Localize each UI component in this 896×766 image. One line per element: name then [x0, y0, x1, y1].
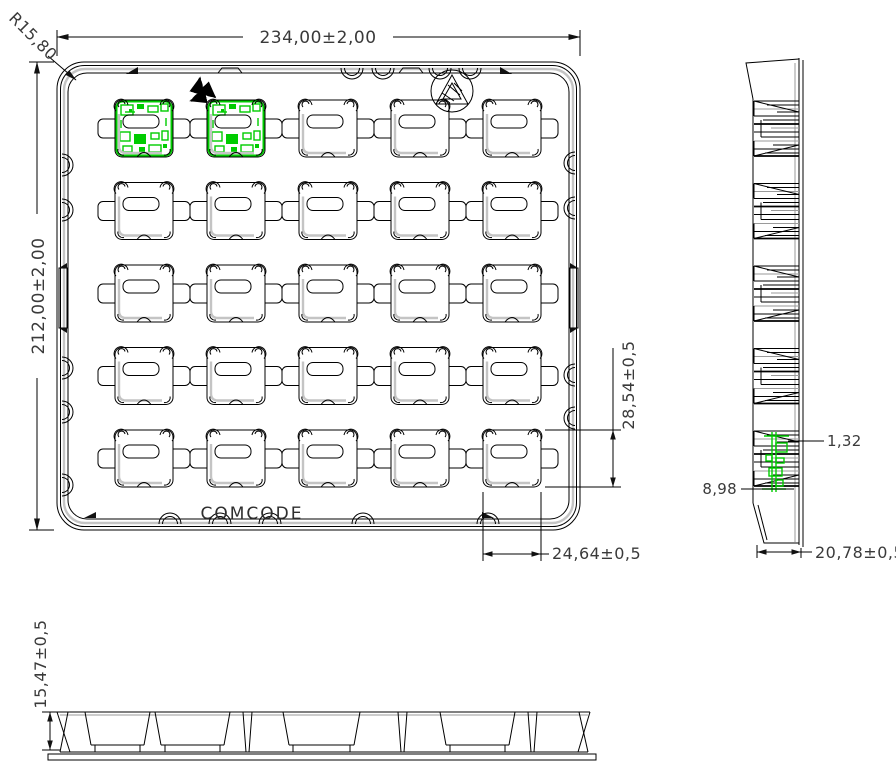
tray-label: COMCODE	[200, 504, 303, 524]
pocket	[98, 347, 190, 405]
side-pocket-profile	[754, 349, 799, 404]
pocket	[190, 429, 282, 487]
pocket	[190, 182, 282, 240]
pocket	[282, 429, 374, 487]
pocket	[466, 182, 558, 240]
dim-pocket-width: 24,64±0,5	[483, 492, 641, 563]
tray-border	[57, 62, 580, 530]
front-view: 15,47±0,5	[31, 619, 596, 760]
pocket	[374, 264, 466, 322]
dim-corner-radius-label: R15,80	[5, 8, 61, 64]
top-view: COMCODE	[57, 62, 580, 530]
material-mark-icon	[431, 70, 473, 112]
pocket	[466, 429, 558, 487]
dim-pocket-depth-label: 8,98	[702, 480, 737, 498]
engineering-drawing: COMCODE 234,00±2,00 212,00±2,00 R15,80 2…	[0, 0, 896, 766]
pocket	[98, 182, 190, 240]
dim-tray-height-label: 15,47±0,5	[31, 619, 50, 708]
dim-profile-width: 20,78±0,5	[757, 543, 896, 562]
dim-overall-width-label: 234,00±2,00	[259, 28, 376, 48]
side-pocket-profile	[754, 266, 799, 321]
pocket	[466, 264, 558, 322]
dim-profile-width-label: 20,78±0,5	[815, 543, 896, 562]
dim-overall-height-label: 212,00±2,00	[29, 237, 49, 354]
side-view: 1,32 8,98 20,78±0,5	[702, 58, 896, 562]
pocket	[466, 99, 558, 157]
dim-pocket-height: 28,54±0,5	[545, 340, 638, 487]
pocket	[282, 182, 374, 240]
side-pocket-profile	[754, 101, 799, 156]
dim-overall-width: 234,00±2,00	[57, 27, 580, 56]
pocket	[374, 347, 466, 405]
pocket	[190, 347, 282, 405]
pocket	[282, 347, 374, 405]
pocket	[282, 99, 374, 157]
pocket	[374, 182, 466, 240]
pocket	[98, 264, 190, 322]
side-pocket-profiles	[754, 101, 799, 486]
pocket	[374, 99, 466, 157]
pocket	[466, 347, 558, 405]
pocket-grid	[98, 99, 558, 487]
dim-overall-height: 212,00±2,00	[26, 62, 54, 530]
pocket	[282, 264, 374, 322]
front-feet	[85, 712, 537, 752]
dim-tray-height: 15,47±0,5	[31, 619, 60, 750]
dim-pocket-width-label: 24,64±0,5	[552, 544, 641, 563]
pocket	[98, 429, 190, 487]
dim-pcb-thickness-label: 1,32	[827, 432, 862, 450]
side-pocket-profile	[754, 184, 799, 239]
pocket	[190, 264, 282, 322]
pocket	[374, 429, 466, 487]
dim-pocket-height-label: 28,54±0,5	[619, 340, 638, 429]
